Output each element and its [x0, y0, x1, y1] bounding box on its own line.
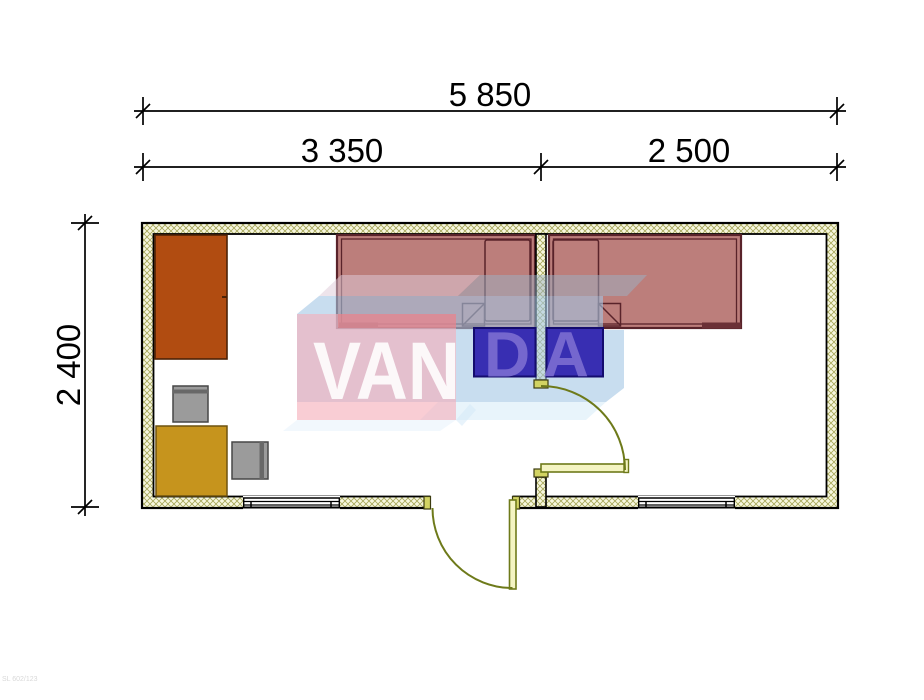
svg-text:VAN: VAN — [313, 326, 460, 417]
svg-text:5 850: 5 850 — [449, 76, 532, 113]
svg-text:2 400: 2 400 — [50, 324, 87, 407]
svg-text:2 500: 2 500 — [648, 132, 731, 169]
svg-text:SL 602/123: SL 602/123 — [2, 676, 38, 683]
svg-text:3 350: 3 350 — [301, 132, 384, 169]
